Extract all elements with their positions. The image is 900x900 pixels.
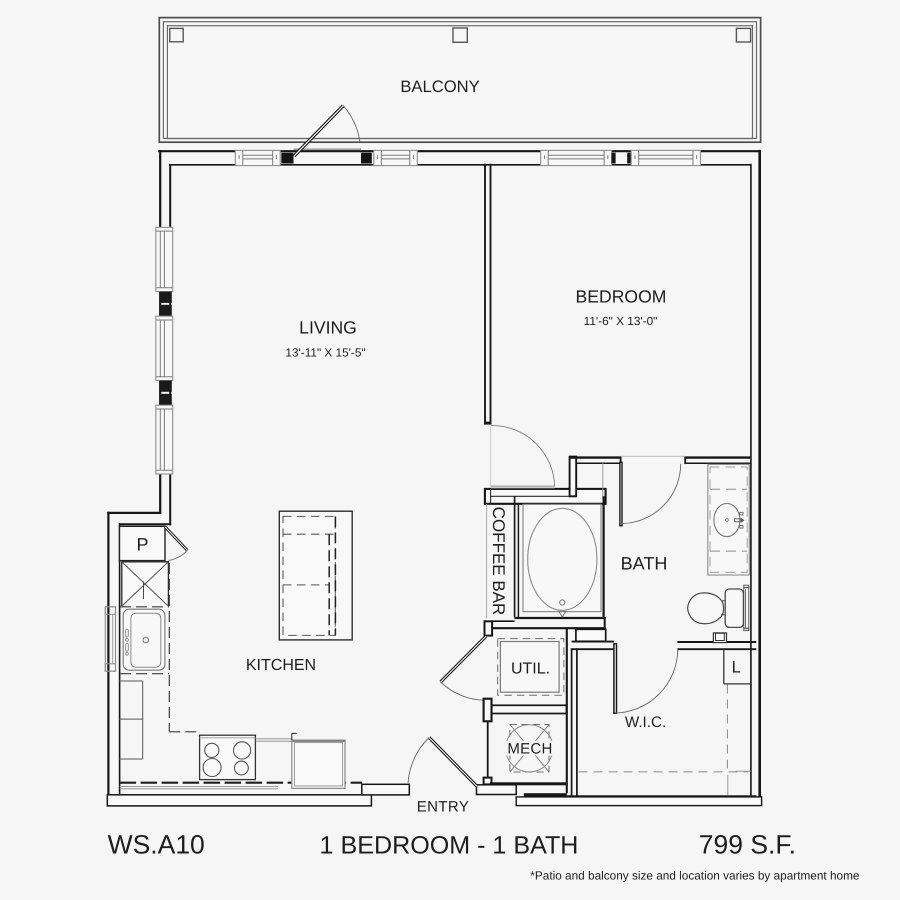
svg-text:BEDROOM: BEDROOM: [576, 287, 667, 307]
svg-text:799 S.F.: 799 S.F.: [699, 830, 796, 860]
svg-text:13'-11" X 15'-5": 13'-11" X 15'-5": [285, 346, 365, 360]
svg-text:P: P: [136, 535, 148, 555]
svg-text:MECH: MECH: [507, 741, 552, 758]
svg-text:COFFEE BAR: COFFEE BAR: [489, 507, 508, 616]
svg-text:L: L: [732, 659, 741, 677]
svg-text:WS.A10: WS.A10: [108, 830, 205, 860]
svg-text:1 BEDROOM - 1 BATH: 1 BEDROOM - 1 BATH: [320, 832, 579, 860]
svg-text:BALCONY: BALCONY: [400, 77, 479, 96]
svg-text:LIVING: LIVING: [299, 318, 357, 338]
svg-text:W.I.C.: W.I.C.: [625, 714, 666, 731]
svg-text:ENTRY: ENTRY: [417, 799, 470, 816]
svg-text:BATH: BATH: [621, 554, 668, 574]
svg-text:KITCHEN: KITCHEN: [246, 657, 316, 674]
svg-text:11'-6" X 13'-0": 11'-6" X 13'-0": [584, 314, 658, 328]
svg-text:*Patio and balcony size and lo: *Patio and balcony size and location var…: [530, 869, 860, 883]
svg-text:UTIL.: UTIL.: [511, 661, 550, 678]
